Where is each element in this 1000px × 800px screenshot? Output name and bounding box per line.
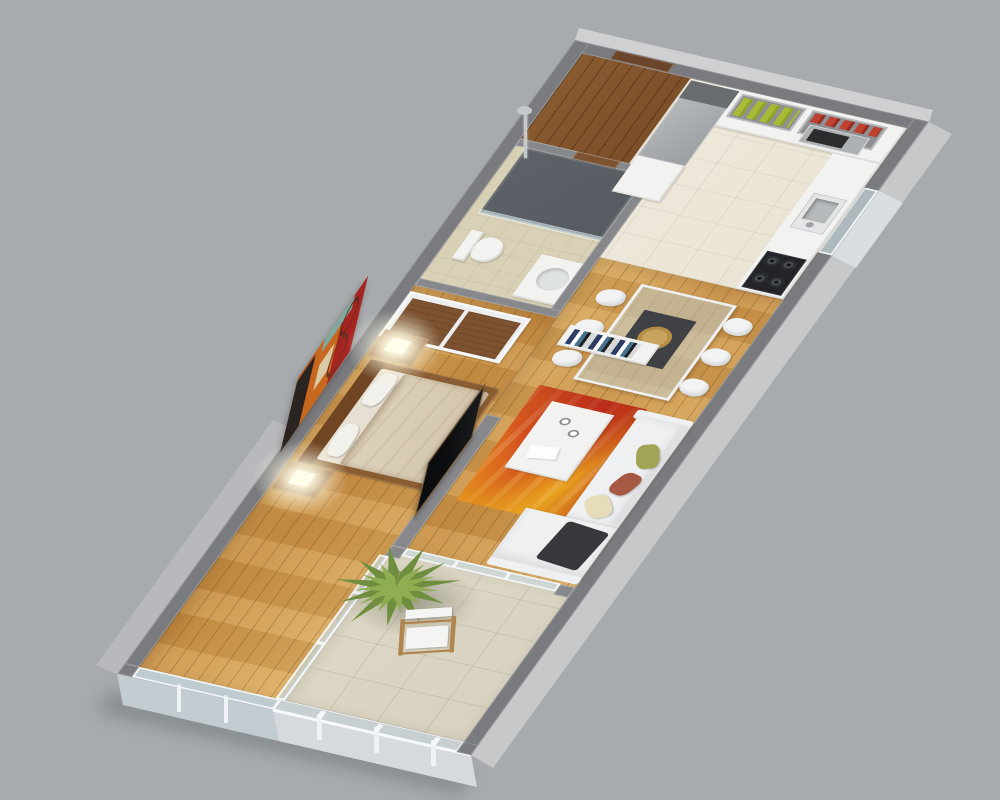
- shower-head: [517, 106, 532, 115]
- chair-back-canvas: [405, 607, 452, 619]
- chair-crossbar-bottom: [403, 649, 450, 654]
- chair-seat-canvas: [405, 625, 448, 649]
- magazines: [526, 445, 560, 459]
- chair-rail-left: [398, 619, 405, 656]
- chair-crossbar-top: [405, 619, 452, 624]
- directors-chair: [395, 607, 459, 662]
- pillow-olive: [636, 444, 660, 470]
- apartment-render-canvas: [0, 0, 1000, 800]
- shower-column: [524, 112, 527, 158]
